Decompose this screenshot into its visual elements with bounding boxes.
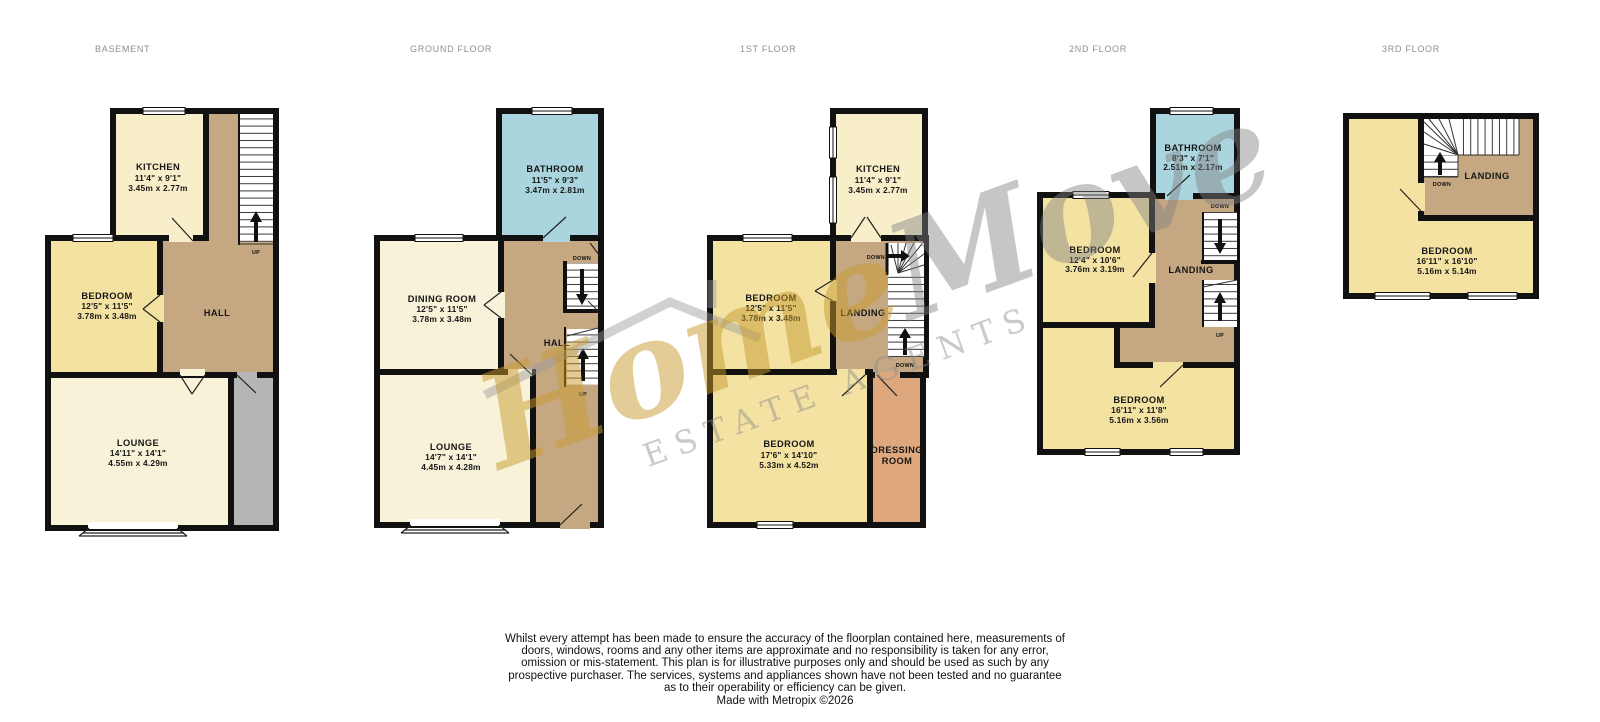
ground-dining-imperial: 12'5" x 11'5" (416, 304, 467, 314)
metropix-credit: Made with Metropix ©2026 (505, 695, 1065, 707)
first-kitchen-imperial: 11'4" x 9'1" (855, 175, 901, 185)
first-bedroom2-imperial: 17'6" x 14'10" (761, 450, 818, 460)
second-landing-label: LANDING (1168, 265, 1213, 275)
title-ground-floor: GROUND FLOOR (410, 44, 492, 54)
basement-hall-label: HALL (204, 308, 230, 318)
ground-down-label: DOWN (573, 256, 591, 262)
title-basement: BASEMENT (95, 44, 150, 54)
first-bedroom2-label: BEDROOM (763, 439, 814, 449)
ground-hall-label: HALL (544, 338, 570, 348)
basement-kitchen-label: KITCHEN (136, 162, 180, 172)
basement-bedroom-imperial: 12'5" x 11'5" (81, 301, 132, 311)
ground-dining-label: DINING ROOM (408, 294, 476, 304)
third-bedroom-imperial: 16'11" x 16'10" (1416, 256, 1477, 266)
third-down-label: DOWN (1433, 182, 1451, 188)
ground-dining-metric: 3.78m x 3.48m (412, 314, 471, 324)
window (830, 127, 837, 158)
first-bedroom2-metric: 5.33m x 4.52m (759, 460, 818, 470)
second-bedroom2-imperial: 16'11" x 11'8" (1111, 405, 1167, 415)
window (1170, 449, 1203, 456)
first-bedroom1-imperial: 12'5" x 11'5" (745, 303, 796, 313)
window (1073, 192, 1109, 199)
window (830, 177, 837, 223)
first-bedroom1-metric: 3.78m x 3.48m (741, 313, 800, 323)
window (415, 235, 463, 242)
basement-bay-window (79, 522, 187, 536)
third-bedroom-label: BEDROOM (1421, 246, 1472, 256)
basement-lounge-metric: 4.55m x 4.29m (108, 458, 167, 468)
second-bedroom1-label: BEDROOM (1069, 245, 1120, 255)
window (757, 522, 793, 529)
ground-lounge-metric: 4.45m x 4.28m (421, 462, 480, 472)
basement-kitchen-imperial: 11'4" x 9'1" (135, 173, 181, 183)
second-bedroom2-label: BEDROOM (1113, 395, 1164, 405)
basement-bedroom-label: BEDROOM (81, 291, 132, 301)
basement-staircase: UP (239, 114, 273, 256)
first-kitchen-metric: 3.45m x 2.77m (848, 185, 907, 195)
basement-up-label: UP (252, 250, 260, 256)
first-landing-label: LANDING (840, 308, 885, 318)
window (143, 108, 185, 115)
basement-bedroom-metric: 3.78m x 3.48m (77, 311, 136, 321)
floorplan-first: DOWN DOWN KITCHEN 11'4" x 9'1" 3.45m x 2… (685, 105, 930, 540)
second-bedroom2-metric: 5.16m x 3.56m (1109, 415, 1168, 425)
second-stairs-down: DOWN (1201, 204, 1239, 262)
first-bedroom1-label: BEDROOM (745, 293, 796, 303)
window (1170, 108, 1213, 115)
third-bedroom-metric: 5.16m x 5.14m (1417, 266, 1476, 276)
floorplan-basement: UP KITCHEN 11'4" x 9'1" 3.45m x 2.77m BE… (45, 105, 285, 540)
third-landing-label: LANDING (1464, 171, 1509, 181)
title-2nd-floor: 2ND FLOOR (1069, 44, 1127, 54)
window (1468, 293, 1517, 300)
basement-lounge-label: LOUNGE (117, 438, 159, 448)
title-3rd-floor: 3RD FLOOR (1382, 44, 1440, 54)
second-bathroom-label: BATHROOM (1164, 143, 1221, 153)
ground-bay-window (401, 519, 509, 533)
second-bathroom-metric: 2.51m x 2.17m (1163, 162, 1222, 172)
floorplan-third: DOWN LANDING BEDROOM 16'11" x 16'10" 5.1… (1320, 105, 1550, 310)
floorplan-page: BASEMENT GROUND FLOOR 1ST FLOOR 2ND FLOO… (0, 0, 1600, 722)
disclaimer-block: Whilst every attempt has been made to en… (505, 633, 1065, 707)
floorplan-ground: DOWN UP (360, 105, 610, 540)
first-down-top-label: DOWN (867, 255, 885, 261)
first-dressing-label-line1: DRESSING (871, 445, 923, 455)
window (1375, 293, 1430, 300)
basement-kitchen-metric: 3.45m x 2.77m (128, 183, 187, 193)
first-down-bottom-label: DOWN (896, 363, 914, 369)
basement-lounge-imperial: 14'11" x 14'1" (110, 448, 166, 458)
window (743, 235, 792, 242)
first-kitchen-label: KITCHEN (856, 164, 900, 174)
ground-lounge-imperial: 14'7" x 14'1" (425, 452, 477, 462)
ground-up-label: UP (579, 392, 587, 398)
first-dressing-label-line2: ROOM (882, 456, 913, 466)
window (532, 108, 572, 115)
ground-bathroom-imperial: 11'5" x 9'3" (532, 175, 578, 185)
floorplan-second: DOWN UP BATHROOM 8'3" x 7'1" (1005, 105, 1245, 465)
second-up-label: UP (1216, 333, 1224, 339)
ground-bathroom-metric: 3.47m x 2.81m (525, 185, 584, 195)
disclaimer-text: Whilst every attempt has been made to en… (505, 633, 1065, 694)
title-1st-floor: 1ST FLOOR (740, 44, 796, 54)
ground-bathroom-label: BATHROOM (526, 164, 583, 174)
basement-void-area (231, 375, 276, 528)
ground-lounge-label: LOUNGE (430, 442, 472, 452)
second-bedroom1-metric: 3.76m x 3.19m (1065, 264, 1124, 274)
window (1085, 449, 1120, 456)
window (73, 235, 113, 242)
second-down-label: DOWN (1211, 204, 1229, 210)
